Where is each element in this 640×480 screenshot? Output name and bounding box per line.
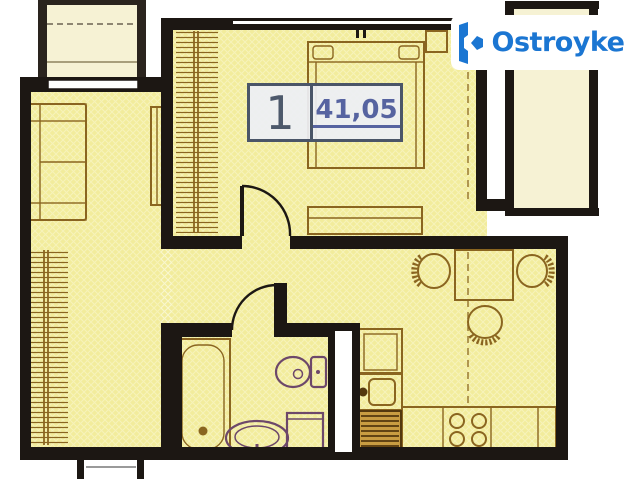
balcony-top-left [38,0,146,86]
wardrobe-hall [30,250,68,445]
wardrobe-bedroom [176,31,218,233]
ostroyke-building-icon [455,22,485,64]
ostroyke-logo: Ostroyke [451,15,628,70]
area-value-cell: 41,05 [313,86,400,139]
living-room-window [48,80,138,89]
ventilation-duct [335,331,352,452]
entrance-porch [77,458,144,479]
ostroyke-logo-text: Ostroyke [492,27,625,58]
floor-plan [0,0,640,480]
washing-machine [359,411,401,450]
area-value: 41,05 [313,97,399,128]
unit-label-box: 1 41,05 [247,83,403,142]
rooms-count: 1 [250,86,310,139]
